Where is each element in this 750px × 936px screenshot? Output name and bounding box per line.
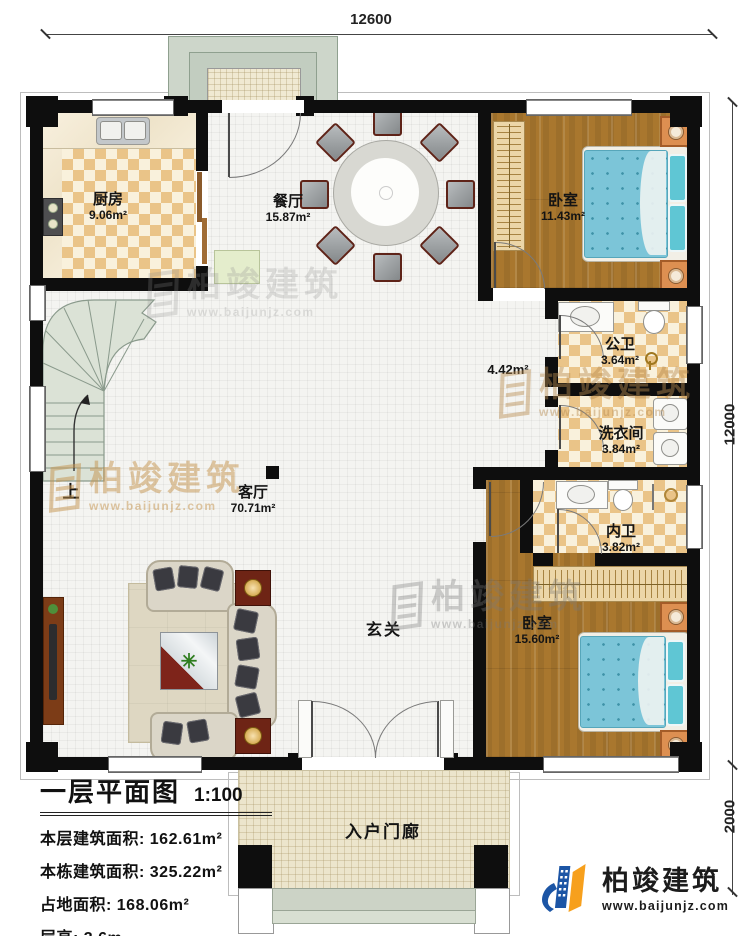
- lamp-icon: [668, 609, 684, 625]
- bedroom-bottom-window: [543, 756, 679, 773]
- entry-door-frame: [298, 700, 312, 758]
- footprint-area-line: 占地面积: 168.06m²: [40, 891, 310, 915]
- toilet-bowl-icon: [613, 489, 633, 511]
- hall-area-label: 4.42m²: [487, 363, 528, 377]
- wall-corridor-bottom: [473, 467, 700, 480]
- bedroom-top-window: [526, 99, 632, 116]
- dimension-top-width: 12600: [326, 11, 416, 28]
- wardrobe-rail: [536, 584, 687, 585]
- toilet-bowl-icon: [643, 310, 665, 334]
- title-block: 一层平面图 1:100 本层建筑面积: 162.61m² 本栋建筑面积: 325…: [40, 772, 310, 936]
- plan-scale: 1:100: [194, 785, 243, 807]
- coffee-table: ✳: [160, 632, 218, 690]
- stove-burner-icon: [48, 219, 58, 229]
- building-area-line: 本栋建筑面积: 325.22m²: [40, 858, 310, 882]
- kitchen-window: [92, 99, 174, 116]
- wall-bedroom-top-left: [478, 113, 491, 301]
- sofa-cushion: [186, 718, 210, 743]
- wall-corner: [26, 742, 58, 772]
- storey-height-line: 层高: 3.6m: [40, 924, 310, 936]
- balcony-door-opening: [222, 100, 304, 113]
- bed-sheet-fold: [640, 151, 666, 255]
- floor-area-line: 本层建筑面积: 162.61m²: [40, 825, 310, 849]
- towel-bar: [652, 484, 654, 510]
- decor-bowl-icon: [244, 727, 262, 745]
- sofa-cushion: [161, 721, 184, 746]
- dimension-right-height: 12000: [722, 395, 739, 455]
- sofa-cushion: [177, 565, 199, 589]
- lamp-icon: [668, 268, 684, 284]
- wall-laundry-left-b: [545, 450, 558, 467]
- dimension-right-porch: 2000: [722, 789, 739, 845]
- washer-drum-icon: [661, 404, 679, 422]
- wall-bedroom-bottom-left-b: [473, 542, 486, 770]
- wall-kitchen-bottom: [30, 278, 208, 291]
- kitchen-slide-door: [202, 218, 207, 264]
- wall-bath-left-b: [545, 357, 558, 387]
- floor-plan: 12600 12000 2000: [0, 0, 750, 936]
- bed-sheet-fold: [638, 637, 664, 725]
- kitchen-tile-floor: [62, 148, 196, 278]
- dining-cabinet: [214, 250, 260, 284]
- foyer-label: 玄关: [366, 622, 402, 640]
- wardrobe: [493, 121, 525, 251]
- wall-bath-laundry: [558, 383, 700, 396]
- sofa-cushion: [234, 664, 259, 689]
- dining-chair: [446, 180, 475, 209]
- stairs-up-label: 上: [63, 484, 80, 503]
- wardrobe: [533, 566, 690, 602]
- plan-title-row: 一层平面图 1:100: [40, 772, 272, 816]
- room-label-bedroom-bottom: 卧室 15.60m²: [515, 616, 560, 646]
- decor-bowl-icon: [244, 579, 262, 597]
- pillow: [668, 154, 687, 202]
- sink-basin-icon: [567, 485, 595, 504]
- wall-corner: [670, 96, 702, 127]
- dimension-line-right: [732, 102, 733, 895]
- company-logo: 柏竣建筑 www.baijunjz.com: [536, 860, 729, 920]
- entry-door-frame: [440, 700, 454, 758]
- porch-label: 入户门廊: [345, 824, 421, 843]
- side-table: [235, 570, 271, 606]
- floor-drain-icon: [645, 352, 658, 365]
- entry-door-opening: [302, 757, 444, 770]
- public-bath-window: [686, 306, 703, 364]
- room-label-public-bath: 公卫 3.64m²: [601, 337, 639, 367]
- room-label-kitchen: 厨房 9.06m²: [89, 192, 127, 222]
- pillow: [668, 204, 687, 252]
- towel-hook-icon: [664, 488, 678, 502]
- stair-window-lower: [29, 386, 46, 472]
- company-logo-icon: [536, 860, 594, 920]
- stove-burner-icon: [48, 203, 58, 213]
- room-label-inner-bath: 内卫 3.82m²: [602, 524, 640, 554]
- inner-bath-window: [686, 485, 703, 549]
- pillow: [666, 640, 685, 682]
- living-window: [108, 756, 202, 773]
- dining-table-center: [379, 186, 393, 200]
- staircase: [36, 291, 176, 483]
- floor-drain-stem: [649, 361, 651, 370]
- wall-bath-left-a: [545, 301, 558, 319]
- column-marker: [266, 466, 279, 479]
- company-name: 柏竣建筑: [602, 868, 729, 895]
- wall-bedroom-bottom-left-a: [473, 480, 486, 489]
- sink-bowl-icon: [124, 121, 146, 140]
- porch-pillar: [474, 845, 508, 888]
- wall-kitchen-right-top: [196, 113, 208, 171]
- sofa-cushion: [233, 608, 259, 634]
- plant-icon: ✳: [181, 649, 198, 674]
- wall-laundry-left-a: [545, 396, 558, 407]
- room-label-laundry: 洗衣间 3.84m²: [598, 426, 643, 456]
- sofa-cushion: [152, 566, 176, 591]
- wall-inner-bath-bottom-b: [595, 553, 700, 566]
- dimension-line-top: [45, 34, 713, 35]
- room-label-dining: 餐厅 15.87m²: [266, 194, 311, 224]
- sofa-cushion: [236, 637, 261, 662]
- porch-pillar-base: [474, 888, 510, 934]
- wall-right: [687, 100, 700, 770]
- tv-icon: [49, 624, 57, 700]
- wall-inner-bath-bottom-a: [533, 553, 553, 566]
- kitchen-slide-door: [197, 172, 202, 222]
- dining-chair: [373, 253, 402, 282]
- stair-window-upper: [29, 285, 46, 321]
- wardrobe-rail: [509, 124, 510, 248]
- room-label-living: 客厅 70.71m²: [231, 485, 276, 515]
- wall-corner: [26, 96, 58, 127]
- pillow: [666, 684, 685, 726]
- plant-icon: [48, 604, 58, 614]
- plan-title: 一层平面图: [40, 772, 180, 809]
- company-website: www.baijunjz.com: [602, 899, 729, 913]
- side-table: [235, 718, 271, 754]
- washer-drum-icon: [661, 439, 679, 457]
- room-label-bedroom-top: 卧室 11.43m²: [541, 193, 585, 223]
- sink-bowl-icon: [100, 121, 122, 140]
- door-opening: [493, 288, 545, 301]
